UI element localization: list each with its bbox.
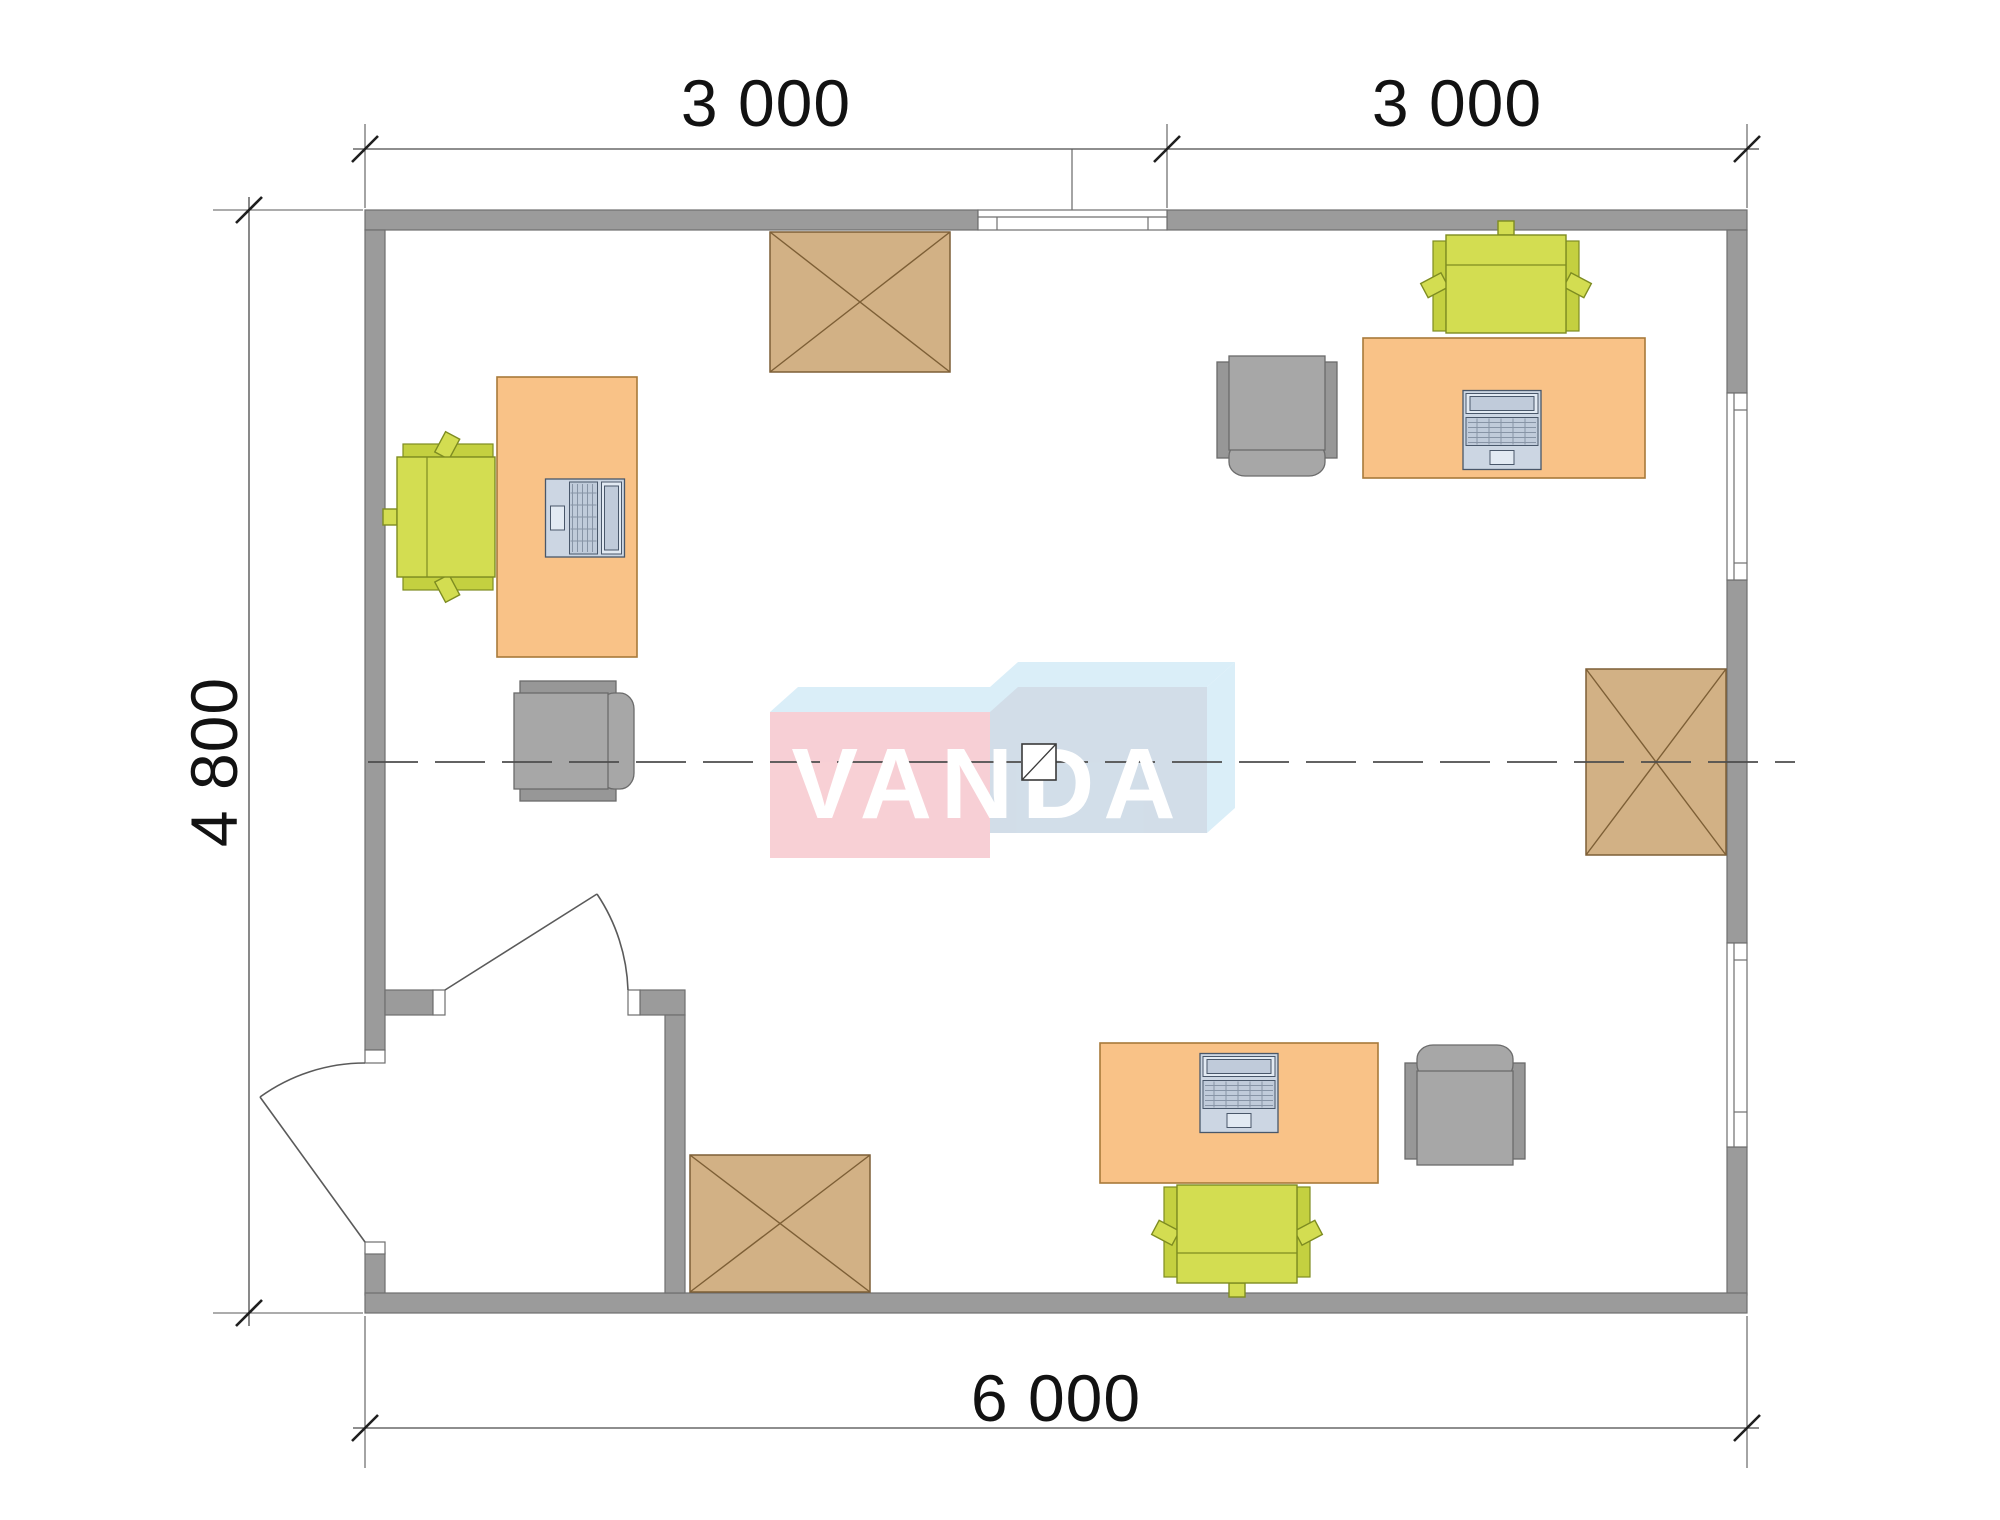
section-marker [1022,744,1056,780]
crossed-table-top [770,232,950,372]
laptop-bottom [1200,1054,1278,1133]
dim-label-top-left: 3 000 [681,66,851,140]
top-wall-right-segment [1167,210,1747,230]
vestibule-wall-vertical [665,1015,685,1293]
office-floor-plan: 3 000 3 000 4 800 6 000 [0,0,2000,1520]
dim-label-left: 4 800 [177,677,251,847]
entrance-door-jamb-top [365,1050,385,1063]
office-chair-top-right [1421,221,1592,333]
floor-plan-page: 3 000 3 000 4 800 6 000 [0,0,2000,1520]
laptop-top-right [1463,391,1541,470]
right-window-upper [1727,393,1747,580]
guest-armchair-top-right [1217,356,1337,476]
interior-door [445,894,628,990]
bottom-wall [365,1293,1747,1313]
guest-armchair-bottom [1405,1045,1525,1165]
interior-door-jamb-right [628,990,640,1015]
laptop-top-left [546,479,625,557]
dim-label-top-right: 3 000 [1372,66,1542,140]
dimension-bottom: 6 000 [352,1316,1760,1468]
right-wall-lower [1727,1147,1747,1295]
watermark-blue-box-side-face [1207,662,1235,833]
right-window-lower [1727,943,1747,1147]
dim-label-bottom: 6 000 [971,1361,1141,1435]
entrance-door-swing-arc [260,1063,365,1097]
entrance-door-jamb-bottom [365,1242,385,1254]
watermark-pink-box-top-face [770,687,1018,712]
interior-door-leaf [445,894,597,990]
top-window [978,210,1167,230]
dimension-left: 4 800 [177,197,363,1326]
left-wall-upper [365,230,385,1050]
interior-door-swing-arc [597,894,628,990]
right-wall-upper [1727,230,1747,393]
door-jambs [365,990,640,1254]
vestibule-wall-stub-left [385,990,433,1015]
guest-armchair-top-left [514,681,634,801]
office-chair-bottom [1152,1185,1323,1297]
top-wall-left-segment [365,210,978,230]
entrance-door-leaf [260,1097,365,1242]
watermark-blue-box-top-face [990,662,1235,687]
crossed-table-bottom-left [690,1155,870,1292]
left-wall-lower-stub [365,1253,385,1295]
office-chair-top-left [383,432,495,603]
vestibule-wall-corner [640,990,685,1015]
watermark-text: VANDA [791,728,1184,840]
dimension-top: 3 000 3 000 [352,66,1760,211]
interior-door-jamb-left [433,990,445,1015]
entrance-door [260,1063,365,1242]
